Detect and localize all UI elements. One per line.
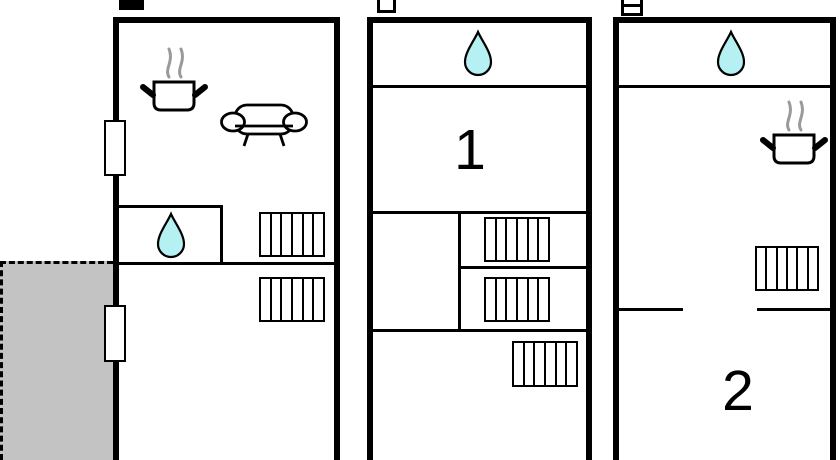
stairs-icon: [259, 277, 325, 322]
wall: [624, 4, 640, 7]
stacked-squares-icon: [621, 0, 643, 16]
wall: [757, 308, 836, 311]
water-drop-icon: [462, 30, 494, 78]
stove-icon: [758, 97, 830, 167]
window: [104, 120, 126, 176]
stairs-icon: [484, 277, 550, 322]
sofa-icon: [220, 100, 308, 152]
filled-square-icon: [119, 0, 144, 10]
wall: [113, 205, 223, 208]
room-number: 1: [438, 122, 502, 179]
window: [104, 305, 126, 362]
water-drop-icon: [715, 30, 747, 78]
wall: [458, 211, 461, 332]
wall: [367, 329, 592, 332]
water-drop-icon: [155, 212, 187, 260]
stairs-icon: [755, 246, 819, 291]
wall: [613, 85, 836, 88]
wall: [220, 205, 223, 265]
stairs-icon: [259, 212, 325, 257]
wall: [113, 262, 340, 265]
stairs-icon: [484, 217, 550, 262]
wall: [458, 266, 592, 269]
wall: [367, 211, 592, 214]
stove-icon: [138, 44, 210, 114]
wall: [367, 85, 592, 88]
room-number: 2: [706, 363, 770, 420]
floor-plan-image: 1 2: [0, 0, 840, 460]
wall: [613, 308, 683, 311]
terrace-area: [0, 261, 113, 460]
stairs-icon: [512, 341, 578, 387]
outline-square-icon: [377, 0, 396, 13]
plan-outer-wall: [367, 17, 592, 460]
